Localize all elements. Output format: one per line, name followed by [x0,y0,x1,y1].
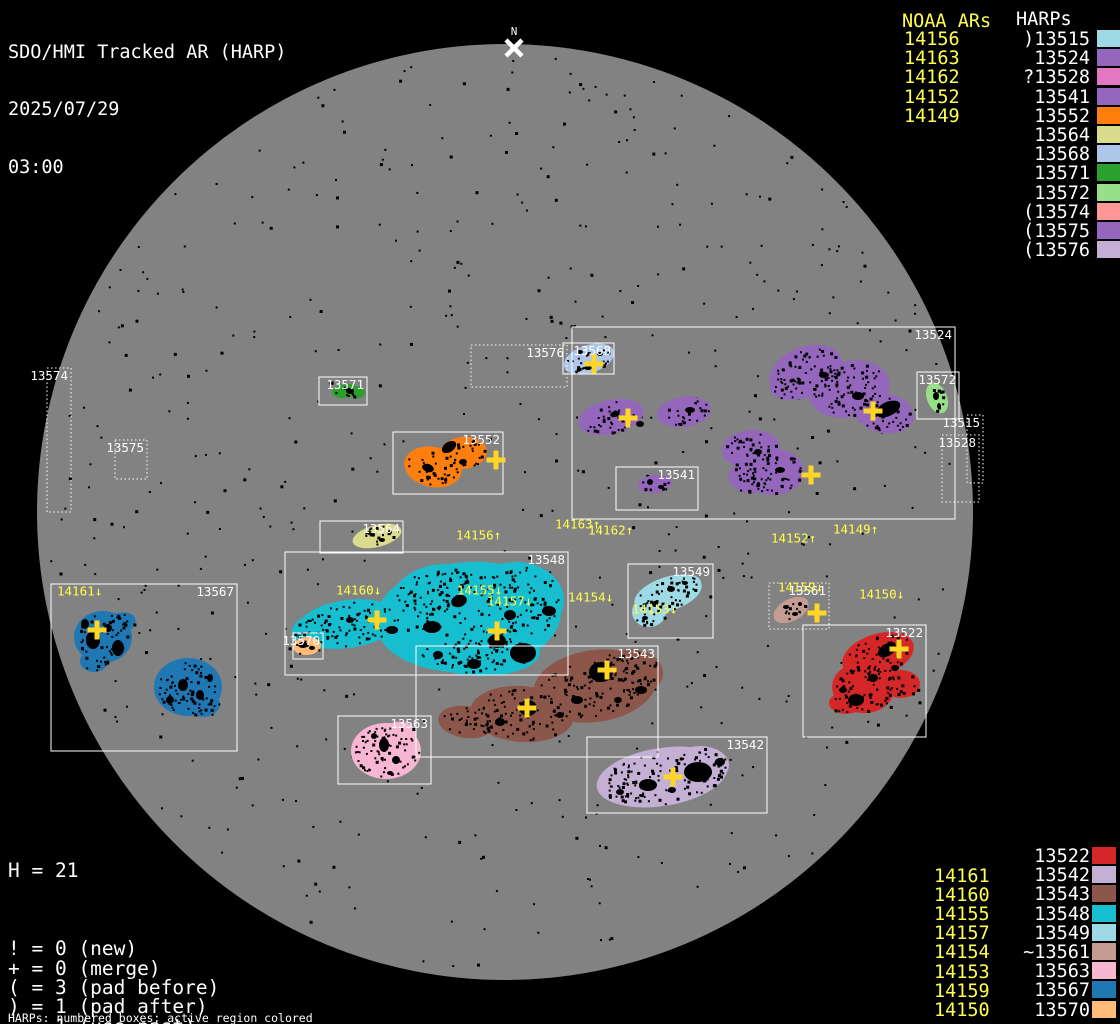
harp-color-swatch [1097,68,1120,85]
noaa-ar-label: 14159↓ [778,580,823,595]
harp-box-label-13548: 13548 [527,552,565,567]
harp-item: )13515 [950,29,1090,48]
harp-color-swatch [1097,184,1120,201]
harp-box-label-13542: 13542 [726,737,764,752]
harp-color-swatch [1097,145,1120,162]
harp-color-swatch [1092,981,1116,998]
harp-item: 13541 [950,87,1090,106]
legend-item: ! = 0 (new) [8,939,231,958]
figure-time: 03:00 [8,158,286,177]
harp-color-swatch [1092,847,1116,864]
noaa-ar-label: 14157↓ [487,594,532,609]
harp-item: 13542 [950,865,1090,884]
noaa-ar-label: 14156↑ [456,528,501,543]
harp-item: 13568 [950,144,1090,163]
harp-box-label-13575: 13575 [106,440,144,455]
noaa-ar-label: 14162↑ [588,523,633,538]
harp-color-swatch [1097,49,1120,66]
harp-item: 13548 [950,904,1090,923]
noaa-ar-label: 14161↓ [57,584,102,599]
harp-box-label-13528: 13528 [938,435,976,450]
footnote-harps: HARPs: numbered boxes; active region col… [8,1013,410,1024]
harp-item: (13574 [950,202,1090,221]
harp-color-swatch [1092,1001,1116,1018]
harp-box-label-13543: 13543 [617,646,655,661]
harp-item: 13522 [950,846,1090,865]
harp-color-swatch [1097,203,1120,220]
noaa-ar-label: 14150↓ [859,587,904,602]
title-block: SDO/HMI Tracked AR (HARP) 2025/07/29 03:… [8,4,286,216]
harp-item: ?13528 [950,67,1090,86]
harp-item: 13563 [950,961,1090,980]
harp-color-swatch [1092,866,1116,883]
harp-color-swatch [1092,943,1116,960]
harp-box-label-13524: 13524 [914,327,952,342]
harp-color-swatch [1097,241,1120,258]
harp-item: 13552 [950,106,1090,125]
harp-item: 13564 [950,125,1090,144]
harp-color-swatch [1097,164,1120,181]
harp-box-label-13563: 13563 [390,716,428,731]
harp-item: 13572 [950,183,1090,202]
harp-item: 13524 [950,48,1090,67]
harp-box-label-13571: 13571 [326,377,364,392]
noaa-ar-label: 14154↓ [568,590,613,605]
noaa-ar-label: 14160↓ [336,583,381,598]
harp-color-swatch [1092,905,1116,922]
harp-color-swatch [1097,126,1120,143]
north-label: N [511,25,518,38]
harp-box-label-13522: 13522 [885,625,923,640]
harp-color-swatch [1092,924,1116,941]
harp-box-label-13549: 13549 [672,564,710,579]
harp-color-swatch [1092,885,1116,902]
noaa-ar-label: 14149↑ [833,522,878,537]
harp-item: 13549 [950,923,1090,942]
harp-item: 13571 [950,163,1090,182]
noaa-ar-label: 14152↑ [771,531,816,546]
harp-color-swatch [1097,107,1120,124]
harp-color-swatch [1097,222,1120,239]
harp-box-label-13576: 13576 [526,345,564,360]
harp-item: ~13561 [950,942,1090,961]
harp-item: (13575 [950,221,1090,240]
harp-box-label-13515: 13515 [942,415,980,430]
harp-figure: 1357413575135761351513528135711356813552… [0,0,1120,1024]
harp-box-label-13570: 13570 [282,633,320,648]
figure-title: SDO/HMI Tracked AR (HARP) [8,43,286,62]
figure-date: 2025/07/29 [8,100,286,119]
noaa-ar-label: 14153↓ [632,602,677,617]
harp-box-label-13541: 13541 [657,467,695,482]
harp-item: 13570 [950,1000,1090,1019]
harp-color-swatch [1097,30,1120,47]
harp-item: 13567 [950,980,1090,999]
harp-box-label-13574: 13574 [30,368,68,383]
harp-box-label-13552: 13552 [462,432,500,447]
harps-header: HARPs [1016,9,1072,30]
harp-box-label-13572: 13572 [918,372,956,387]
harp-item: (13576 [950,240,1090,259]
harp-color-swatch [1097,88,1120,105]
harp-item: 13543 [950,884,1090,903]
harp-count: H = 21 [8,861,231,880]
harp-box-label-13564: 13564 [362,521,400,536]
harp-box-label-13567: 13567 [196,584,234,599]
footnotes: HARPs: numbered boxes; active region col… [8,990,410,1024]
harp-color-swatch [1092,962,1116,979]
